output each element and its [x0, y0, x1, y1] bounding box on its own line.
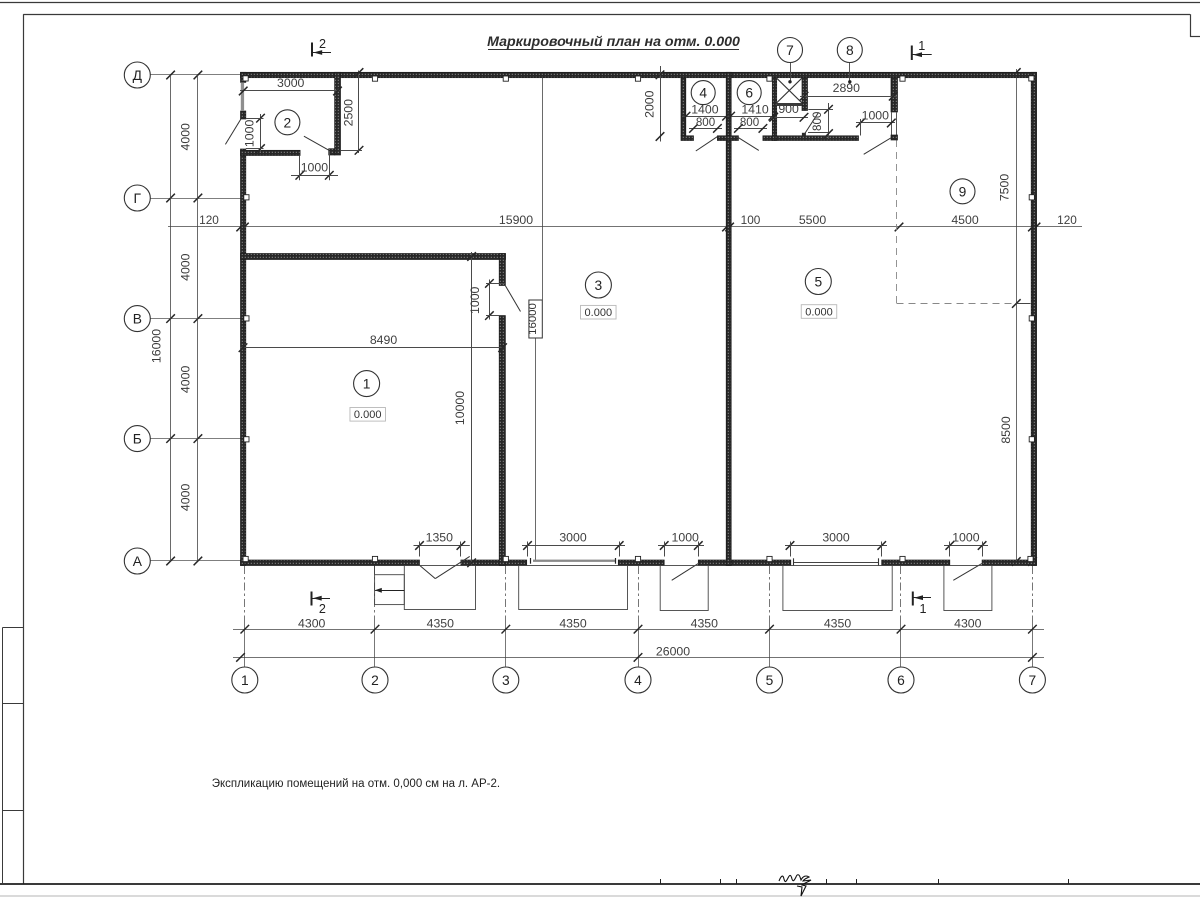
- svg-text:1000: 1000: [672, 530, 700, 544]
- svg-text:8490: 8490: [370, 333, 398, 347]
- svg-text:3000: 3000: [822, 530, 850, 544]
- svg-text:1000: 1000: [301, 161, 329, 175]
- svg-text:800: 800: [811, 112, 824, 131]
- svg-text:4300: 4300: [954, 616, 982, 630]
- svg-text:120: 120: [199, 213, 219, 227]
- svg-text:3: 3: [595, 278, 603, 293]
- svg-text:1: 1: [918, 39, 925, 53]
- svg-text:8500: 8500: [999, 416, 1013, 444]
- svg-text:1: 1: [241, 673, 249, 688]
- svg-text:1: 1: [363, 377, 371, 392]
- svg-text:4: 4: [699, 86, 707, 101]
- svg-text:1400: 1400: [691, 102, 719, 116]
- svg-text:3: 3: [502, 673, 510, 688]
- svg-text:9: 9: [959, 184, 967, 199]
- svg-text:Б: Б: [133, 432, 142, 447]
- svg-text:2: 2: [319, 602, 326, 616]
- svg-text:В: В: [133, 312, 142, 327]
- svg-text:10000: 10000: [453, 391, 467, 425]
- svg-text:7: 7: [1029, 673, 1037, 688]
- svg-text:А: А: [133, 554, 143, 569]
- svg-text:4500: 4500: [951, 213, 979, 227]
- svg-text:1350: 1350: [426, 530, 454, 544]
- svg-text:3000: 3000: [559, 530, 587, 544]
- svg-text:15900: 15900: [499, 213, 533, 227]
- svg-text:6: 6: [745, 86, 753, 101]
- svg-text:100: 100: [741, 213, 761, 227]
- svg-text:4350: 4350: [824, 616, 852, 630]
- svg-text:Г: Г: [134, 191, 142, 206]
- svg-text:Маркировочный план на отм. 0.0: Маркировочный план на отм. 0.000: [487, 34, 740, 50]
- svg-text:0.000: 0.000: [805, 306, 833, 318]
- svg-text:4300: 4300: [298, 616, 326, 630]
- svg-text:6: 6: [897, 673, 905, 688]
- svg-text:2000: 2000: [643, 90, 657, 118]
- svg-text:4350: 4350: [427, 616, 455, 630]
- svg-text:1410: 1410: [741, 102, 769, 116]
- svg-text:3000: 3000: [277, 76, 305, 90]
- svg-text:1000: 1000: [468, 286, 482, 314]
- svg-text:4: 4: [634, 673, 642, 688]
- svg-text:120: 120: [1057, 213, 1077, 227]
- svg-text:900: 900: [778, 102, 799, 116]
- svg-text:1000: 1000: [862, 109, 890, 123]
- svg-text:4000: 4000: [179, 253, 193, 281]
- svg-text:4350: 4350: [691, 616, 719, 630]
- svg-text:Д: Д: [133, 68, 143, 83]
- svg-text:2: 2: [319, 37, 326, 51]
- svg-text:Экспликацию помещений на отм.: Экспликацию помещений на отм. 0,000 см н…: [212, 778, 500, 790]
- svg-text:2: 2: [284, 115, 292, 130]
- svg-text:5500: 5500: [799, 213, 827, 227]
- svg-text:1000: 1000: [242, 120, 256, 148]
- svg-text:26000: 26000: [656, 645, 690, 659]
- svg-text:2500: 2500: [342, 99, 356, 127]
- svg-text:0.000: 0.000: [354, 409, 382, 421]
- svg-text:0.000: 0.000: [585, 307, 613, 319]
- svg-text:4000: 4000: [179, 123, 193, 151]
- svg-text:4350: 4350: [559, 616, 587, 630]
- svg-text:4000: 4000: [179, 366, 193, 394]
- svg-text:5: 5: [766, 673, 774, 688]
- svg-text:4000: 4000: [179, 484, 193, 512]
- svg-text:800: 800: [740, 116, 759, 129]
- svg-text:8: 8: [846, 43, 854, 58]
- svg-text:800: 800: [696, 116, 715, 129]
- svg-text:2: 2: [371, 673, 379, 688]
- svg-text:16000: 16000: [527, 303, 539, 335]
- svg-text:5: 5: [814, 274, 822, 289]
- svg-text:1000: 1000: [952, 530, 980, 544]
- svg-text:7: 7: [786, 43, 794, 58]
- svg-text:7500: 7500: [998, 174, 1012, 202]
- svg-text:1: 1: [919, 602, 926, 616]
- svg-text:2890: 2890: [833, 81, 861, 95]
- svg-text:16000: 16000: [150, 329, 164, 363]
